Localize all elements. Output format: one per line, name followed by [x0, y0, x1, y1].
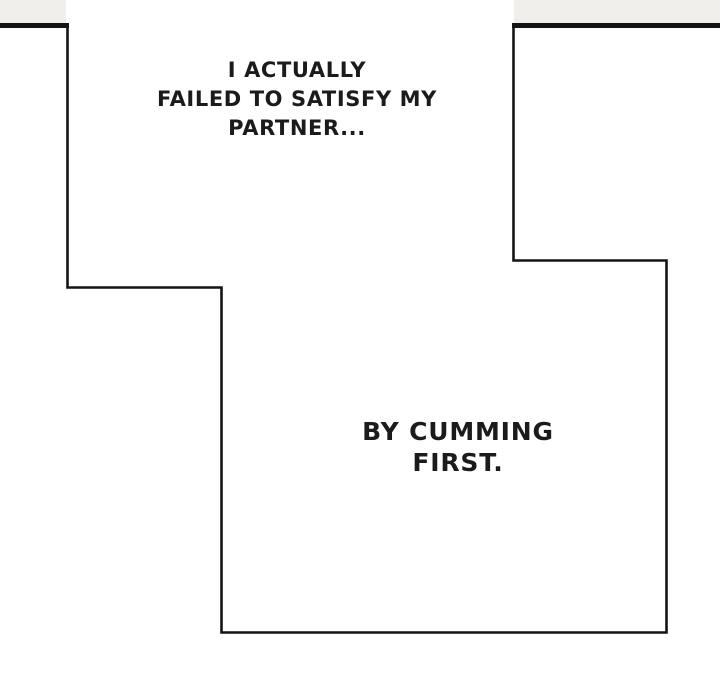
- caption-top-line-3: PARTNER...: [67, 114, 527, 143]
- caption-bottom-line-1: BY CUMMING: [308, 416, 608, 447]
- previous-panel-corner-left: [0, 0, 66, 23]
- previous-panel-corner-right: [514, 0, 720, 23]
- caption-bottom: BY CUMMING FIRST.: [308, 416, 608, 478]
- caption-top-line-2: FAILED TO SATISFY MY: [67, 85, 527, 114]
- caption-top: I ACTUALLY FAILED TO SATISFY MY PARTNER.…: [67, 56, 527, 143]
- comic-page: I ACTUALLY FAILED TO SATISFY MY PARTNER.…: [0, 0, 720, 700]
- caption-top-line-1: I ACTUALLY: [67, 56, 527, 85]
- caption-bottom-line-2: FIRST.: [308, 447, 608, 478]
